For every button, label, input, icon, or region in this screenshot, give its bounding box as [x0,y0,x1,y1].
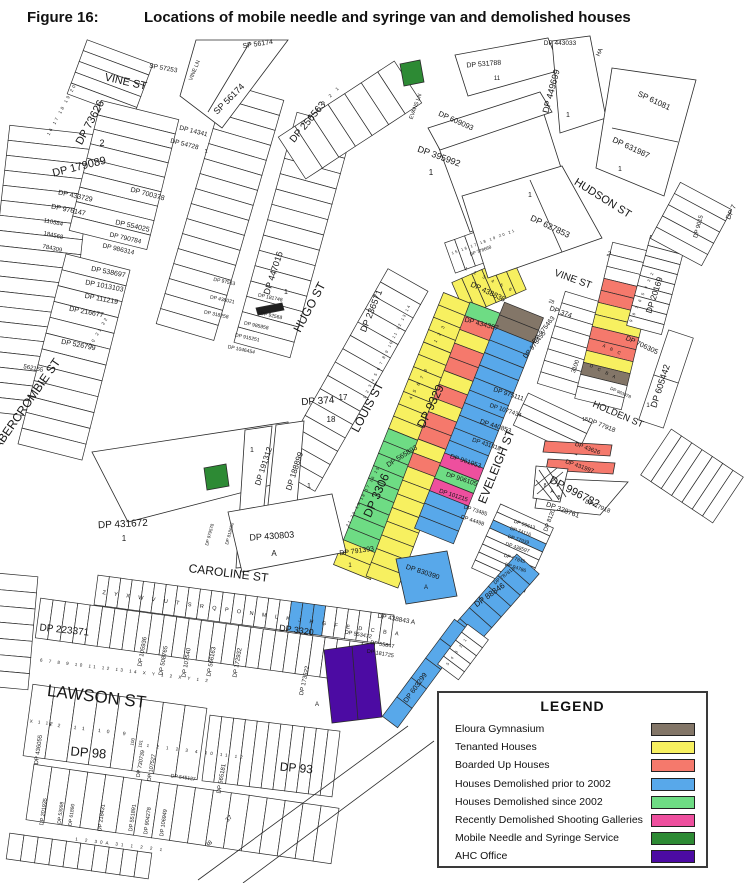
lot [0,606,35,626]
legend-swatch-pink [651,814,695,827]
lot [134,851,152,879]
map-label: DP 443033 [544,40,577,47]
legend-row: Eloura Gymnasium [439,721,706,739]
map-label: 18 [582,417,588,423]
map-label: DP 44498 [460,514,485,527]
legend-item-label: Eloura Gymnasium [455,723,544,735]
legend-swatch-grey [651,723,695,736]
legend-swatch-dkgreen [651,832,695,845]
map-label: DP 14341 [179,125,209,139]
legend-row: Mobile Needle and Syringe Service [439,830,706,848]
map-label: DP 374 [301,395,335,408]
lot [0,654,31,674]
street-label: VINE ST [553,268,593,292]
map-label: 1 [284,289,288,296]
parcel [596,68,696,196]
map-label: SP 57253 [149,63,179,75]
map-label: 18 [327,415,336,424]
map-label: 16 17 18 19 20 [46,83,78,137]
legend-row: Recently Demolished Shooting Galleries [439,812,706,830]
map-label: HA [596,48,605,58]
map-label: 17 [339,393,348,402]
map-label: 1 [528,192,532,199]
lot [0,638,32,658]
map-label: DP 54728 [170,138,200,152]
map-label: DP 431672 [98,518,149,532]
figure-caption: Figure 16: Locations of mobile needle an… [0,0,744,34]
map-label: DP 8120 [543,508,557,533]
legend-item-label: Houses Demolished prior to 2002 [455,778,611,790]
map-label: DP 7 [725,204,738,221]
legend-row: AHC Office [439,848,706,866]
map-label: 11 [494,76,501,82]
legend-item-label: Mobile Needle and Syringe Service [455,832,619,844]
parcel [204,464,229,490]
figure-title: Locations of mobile needle and syringe v… [144,9,631,26]
legend-row: Houses Demolished prior to 2002 [439,776,706,794]
map-label: 1 [566,112,570,119]
legend-item-label: Houses Demolished since 2002 [455,796,603,808]
map-label: 1 [429,168,434,177]
map-label: A [424,585,428,591]
map-label: DP 93 [279,760,314,777]
legend-item-label: Tenanted Houses [455,741,537,753]
map-label: DP 979578 [204,523,215,546]
legend-row: Tenanted Houses [439,739,706,757]
legend-item-label: Boarded Up Houses [455,759,550,771]
legend-swatch-purple [651,850,695,863]
map-label: 1 [307,483,311,490]
legend: LEGEND Eloura GymnasiumTenanted HousesBo… [437,691,708,868]
map-label: 1 [250,447,254,454]
map-label: 1 [122,534,127,543]
legend-swatch-salmon [651,759,695,772]
map-label: DP 77918 [587,417,617,434]
legend-row: Boarded Up Houses [439,757,706,775]
legend-swatch-blue [651,778,695,791]
map-label: A [271,549,277,558]
lot [0,670,29,690]
map-label: DP 98 [70,743,107,761]
figure-number: Figure 16: [27,9,99,26]
legend-swatch-yellow [651,741,695,754]
map-label: 8 [544,483,547,489]
legend-swatch-green [651,796,695,809]
map-label: 1 [618,166,622,173]
map-label: 2 [99,138,104,148]
legend-title: LEGEND [439,698,706,714]
legend-row: Houses Demolished since 2002 [439,794,706,812]
legend-rows: Eloura GymnasiumTenanted HousesBoarded U… [439,721,706,867]
legend-item-label: AHC Office [455,850,507,862]
legend-item-label: Recently Demolished Shooting Galleries [455,814,643,826]
map-label: 1 [204,149,207,155]
lot [0,622,34,642]
parcel [400,60,424,86]
map-label: A [315,702,319,708]
